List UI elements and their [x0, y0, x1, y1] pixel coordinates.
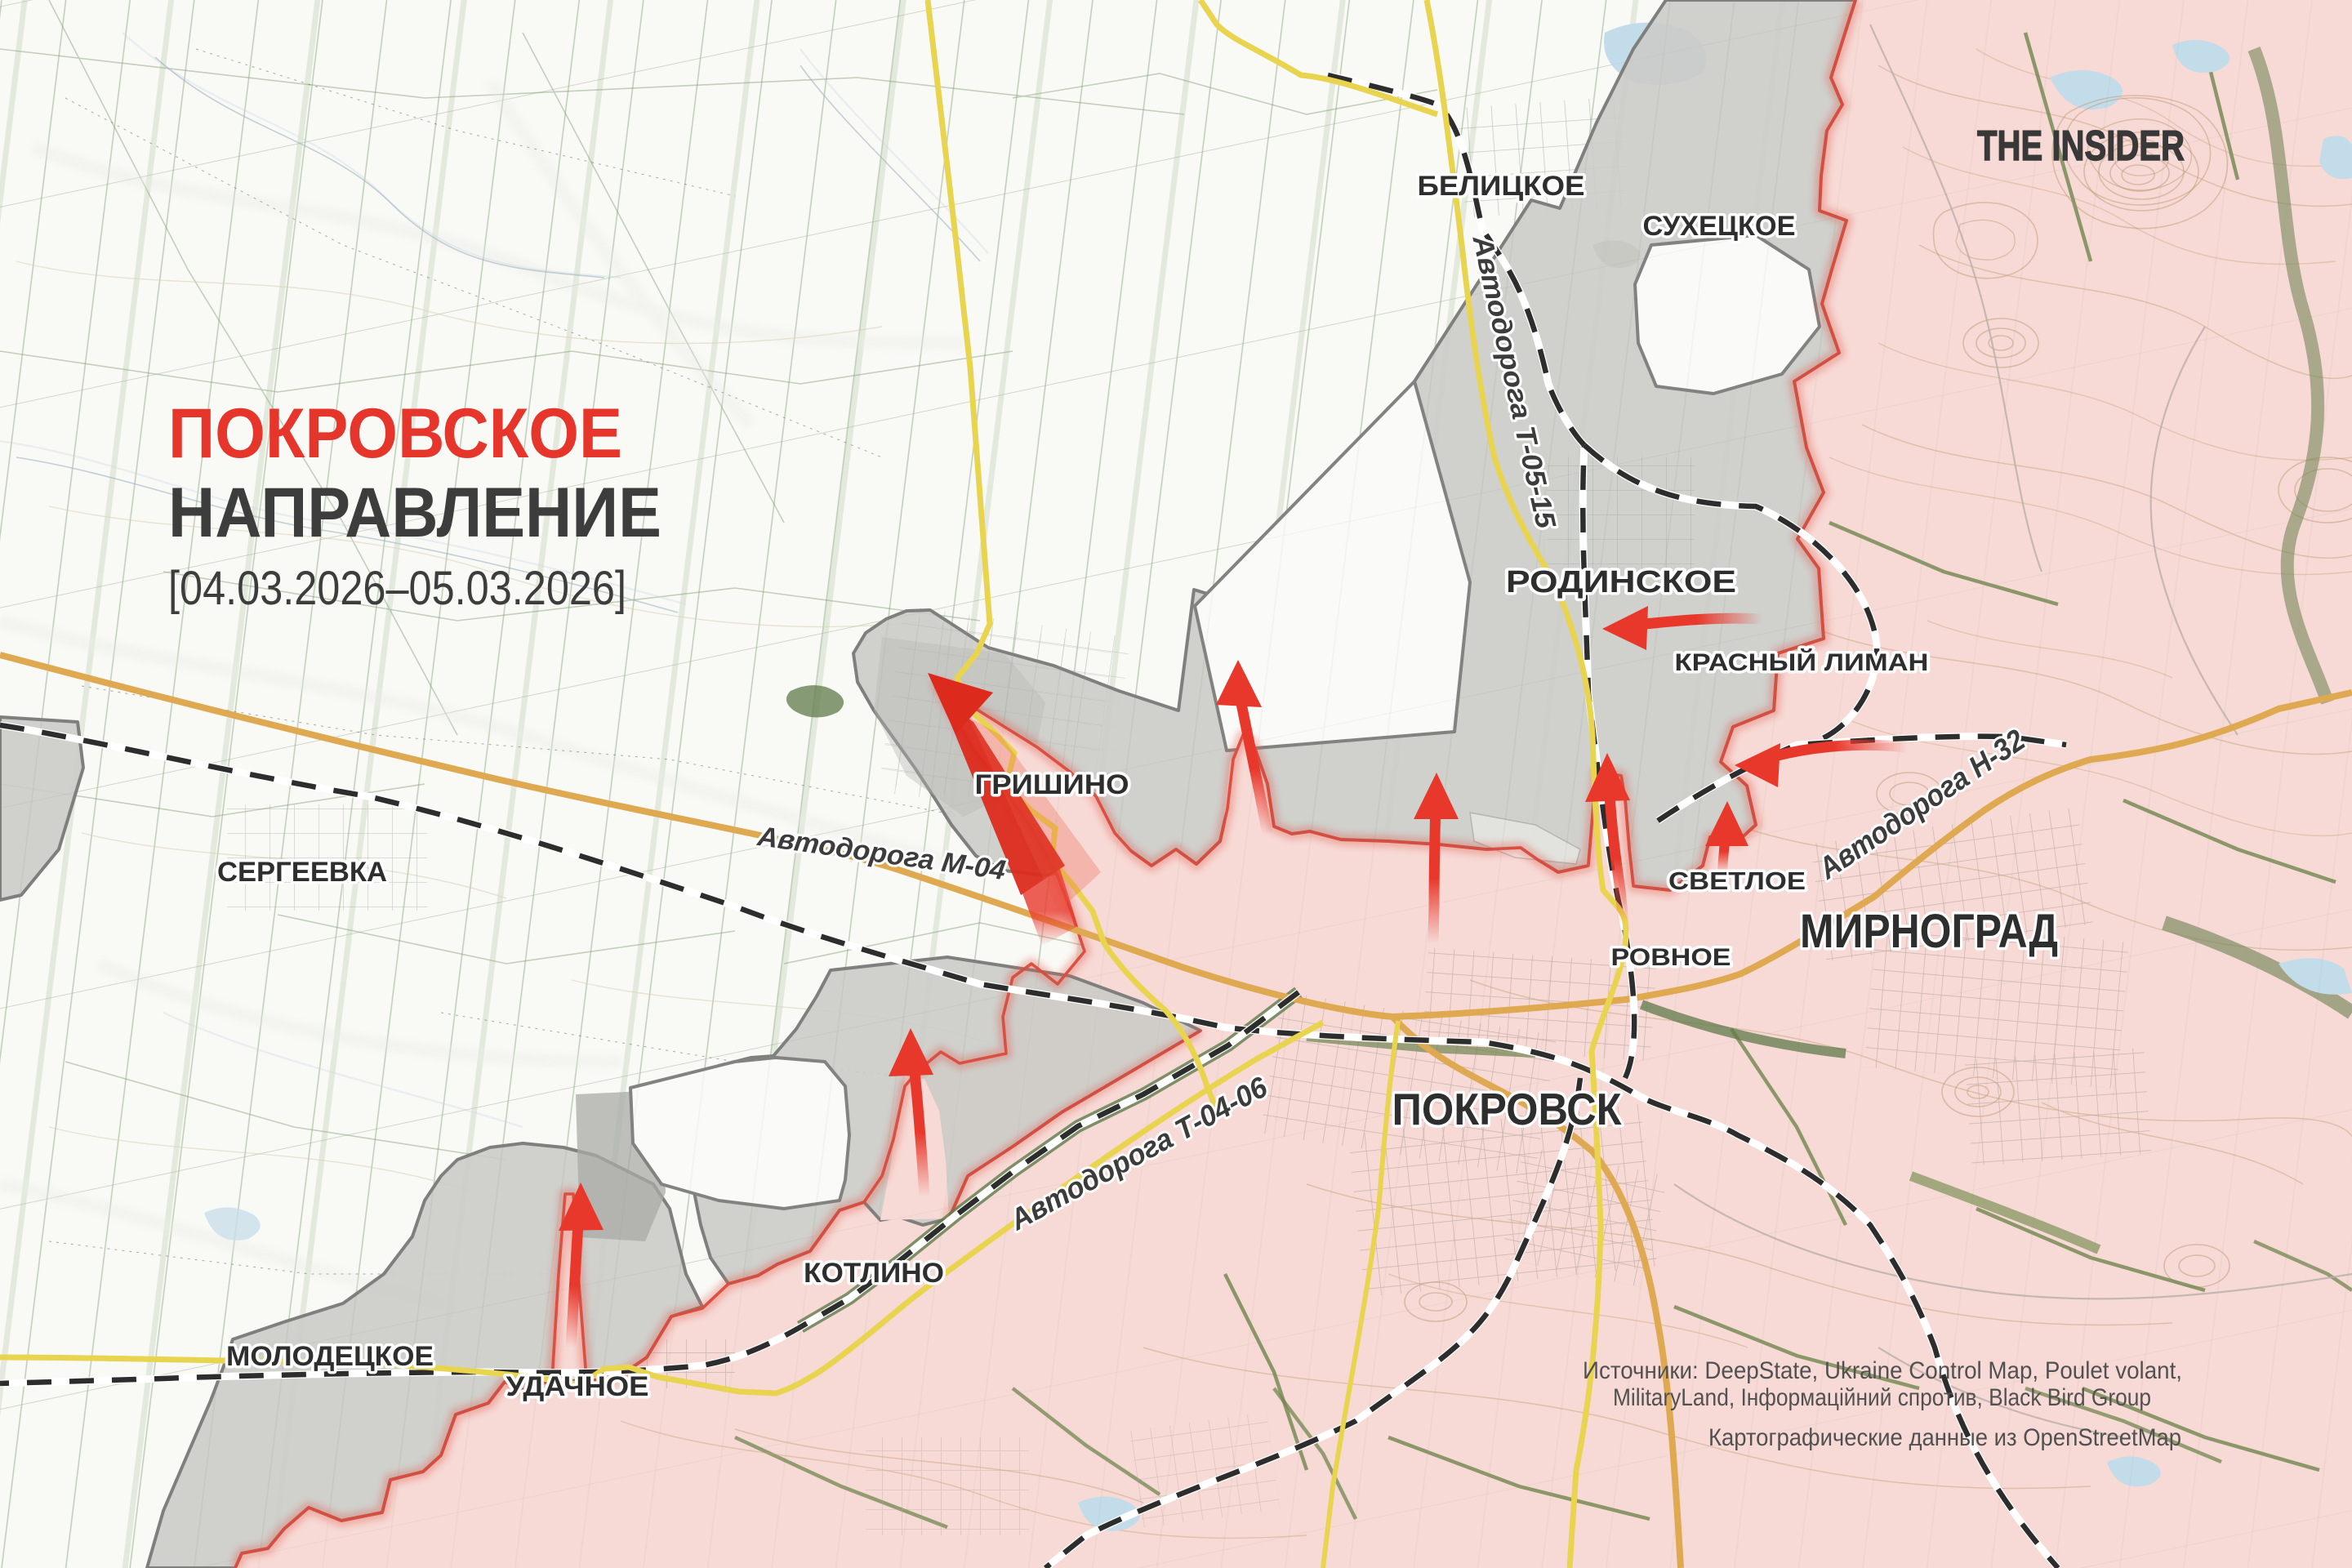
svg-text:THE INSIDER: THE INSIDER — [1977, 122, 2185, 170]
svg-text:РОВНОЕ: РОВНОЕ — [1611, 944, 1731, 971]
svg-text:СЕРГЕЕВКА: СЕРГЕЕВКА — [217, 857, 387, 888]
svg-text:УДАЧНОЕ: УДАЧНОЕ — [506, 1371, 649, 1402]
svg-text:МИРНОГРАД: МИРНОГРАД — [1800, 905, 2058, 958]
svg-text:ПОКРОВСК: ПОКРОВСК — [1392, 1084, 1622, 1134]
svg-text:Картографические данные из Ope: Картографические данные из OpenStreetMap — [1708, 1424, 2181, 1451]
svg-text:СУХЕЦКОЕ: СУХЕЦКОЕ — [1643, 211, 1796, 242]
svg-text:КРАСНЫЙ ЛИМАН: КРАСНЫЙ ЛИМАН — [1675, 648, 1929, 676]
svg-text:СВЕТЛОЕ: СВЕТЛОЕ — [1668, 866, 1806, 895]
svg-text:ГРИШИНО: ГРИШИНО — [975, 769, 1129, 800]
svg-text:[04.03.2026–05.03.2026]: [04.03.2026–05.03.2026] — [168, 562, 626, 615]
svg-text:Источники: DeepState, Ukraine: Источники: DeepState, Ukraine Control Ma… — [1583, 1357, 2182, 1384]
svg-text:БЕЛИЦКОЕ: БЕЛИЦКОЕ — [1418, 171, 1585, 202]
svg-text:MilitaryLand, Інформаційний сп: MilitaryLand, Інформаційний спротив, Bla… — [1613, 1384, 2151, 1411]
svg-text:КОТЛИНО: КОТЛИНО — [804, 1258, 944, 1289]
svg-text:НАПРАВЛЕНИЕ: НАПРАВЛЕНИЕ — [168, 474, 661, 552]
svg-text:РОДИНСКОЕ: РОДИНСКОЕ — [1506, 565, 1736, 599]
svg-text:ПОКРОВСКОЕ: ПОКРОВСКОЕ — [168, 394, 622, 473]
svg-text:МОЛОДЕЦКОЕ: МОЛОДЕЦКОЕ — [226, 1341, 434, 1372]
